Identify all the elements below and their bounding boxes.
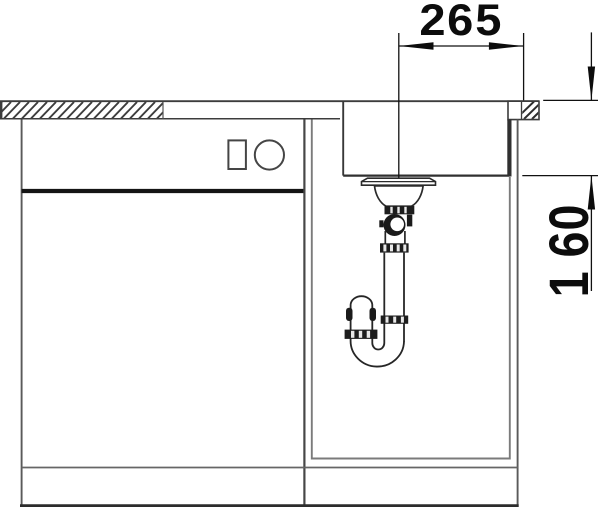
svg-text:0: 0 bbox=[538, 205, 600, 231]
svg-text:5: 5 bbox=[475, 0, 501, 45]
svg-text:6: 6 bbox=[447, 0, 473, 45]
svg-text:6: 6 bbox=[538, 232, 600, 258]
svg-text:1: 1 bbox=[538, 271, 600, 297]
svg-text:2: 2 bbox=[419, 0, 445, 45]
